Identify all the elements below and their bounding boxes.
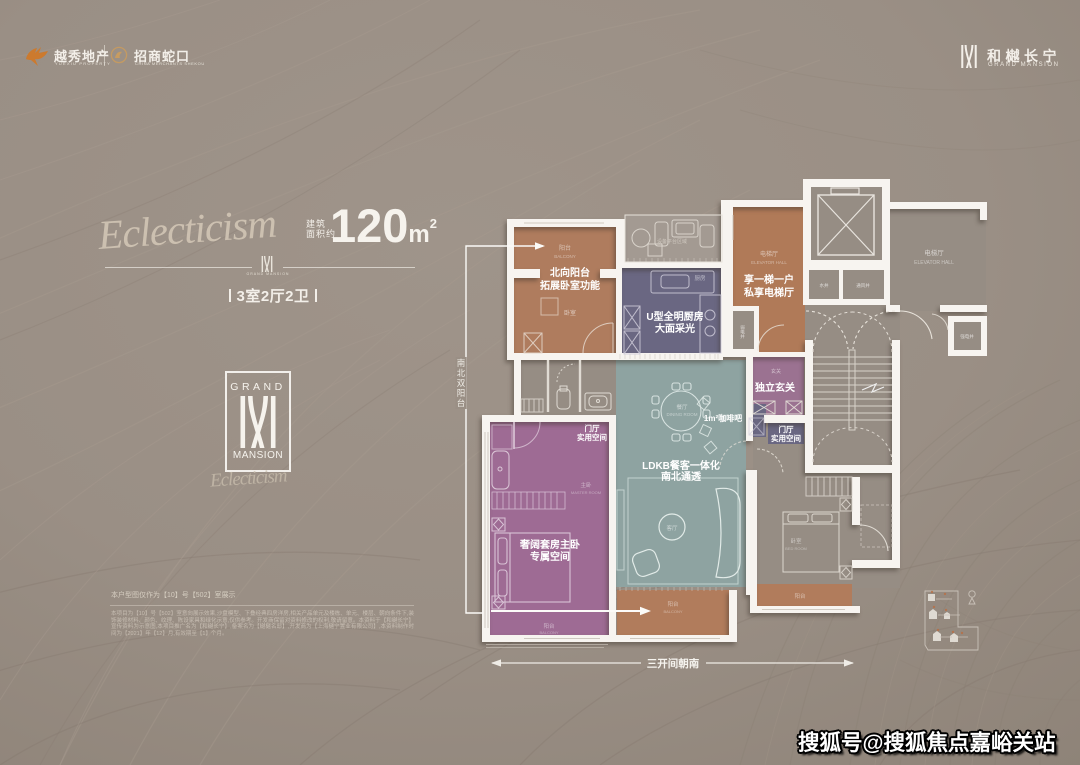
svg-text:U型全明厨房: U型全明厨房 <box>646 310 703 323</box>
svg-text:三开间朝南: 三开间朝南 <box>647 657 700 670</box>
svg-text:台: 台 <box>457 398 466 408</box>
svg-text:1m²咖啡吧: 1m²咖啡吧 <box>704 413 742 423</box>
svg-text:设备平台区域: 设备平台区域 <box>657 238 687 245</box>
svg-text:电梯厅: 电梯厅 <box>924 248 944 257</box>
svg-text:阳: 阳 <box>457 388 466 398</box>
svg-text:ELEVATOR HALL: ELEVATOR HALL <box>914 260 954 266</box>
svg-text:阳台: 阳台 <box>543 622 555 630</box>
svg-text:厨房: 厨房 <box>694 274 706 282</box>
svg-text:卧室: 卧室 <box>564 309 576 317</box>
svg-text:主卧: 主卧 <box>580 481 592 489</box>
svg-text:专属空间: 专属空间 <box>530 550 570 563</box>
svg-text:LDKB餐客一体化: LDKB餐客一体化 <box>642 459 720 472</box>
svg-text:客厅: 客厅 <box>666 524 678 532</box>
svg-text:北向阳台: 北向阳台 <box>550 266 590 279</box>
svg-text:阳台: 阳台 <box>559 244 571 252</box>
svg-text:独立玄关: 独立玄关 <box>755 381 795 394</box>
svg-text:卧室: 卧室 <box>790 537 802 545</box>
svg-text:MASTER ROOM: MASTER ROOM <box>571 490 601 495</box>
svg-text:阳台: 阳台 <box>667 600 679 608</box>
svg-text:DINING ROOM: DINING ROOM <box>667 412 698 417</box>
svg-text:ELEVATOR HALL: ELEVATOR HALL <box>751 260 787 265</box>
svg-text:享一梯一户: 享一梯一户 <box>744 273 794 286</box>
svg-text:门厅: 门厅 <box>779 424 794 434</box>
svg-text:BED ROOM: BED ROOM <box>785 546 807 551</box>
svg-text:阳台: 阳台 <box>794 592 806 600</box>
svg-text:BALCONY: BALCONY <box>554 254 576 259</box>
svg-text:实用空间: 实用空间 <box>771 433 801 443</box>
svg-text:南: 南 <box>457 358 466 368</box>
svg-text:弱电井: 弱电井 <box>740 325 746 340</box>
svg-text:实用空间: 实用空间 <box>577 432 607 442</box>
svg-text:奢阔套房主卧: 奢阔套房主卧 <box>519 538 580 551</box>
svg-text:玄关: 玄关 <box>771 368 781 375</box>
svg-text:拓展卧室功能: 拓展卧室功能 <box>540 279 600 292</box>
svg-text:餐厅: 餐厅 <box>676 403 688 411</box>
svg-text:BALCONY: BALCONY <box>663 609 682 614</box>
svg-text:BALCONY: BALCONY <box>539 630 558 635</box>
svg-text:大面采光: 大面采光 <box>655 322 695 335</box>
svg-text:通风井: 通风井 <box>856 282 870 289</box>
svg-text:北: 北 <box>457 368 466 378</box>
svg-text:门厅: 门厅 <box>585 423 600 433</box>
svg-text:双: 双 <box>457 378 466 388</box>
svg-text:私享电梯厅: 私享电梯厅 <box>743 286 794 299</box>
svg-text:南北通透: 南北通透 <box>661 470 702 483</box>
svg-text:水井: 水井 <box>820 282 829 289</box>
svg-text:电梯厅: 电梯厅 <box>760 250 778 258</box>
svg-text:强电井: 强电井 <box>960 333 974 340</box>
